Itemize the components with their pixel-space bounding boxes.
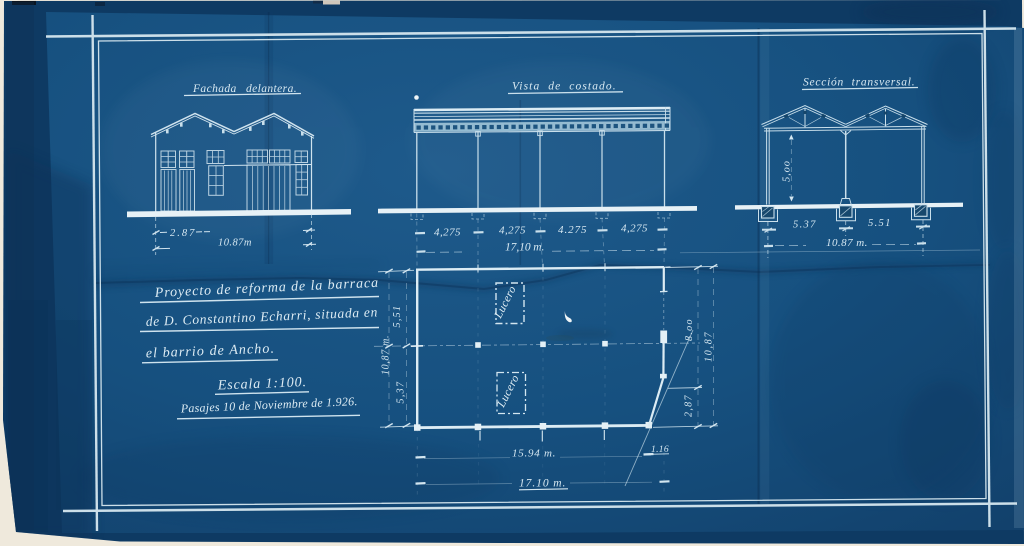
svg-text:4,275: 4,275	[499, 225, 526, 237]
svg-text:5.51: 5.51	[868, 218, 891, 229]
svg-text:17.10 m.: 17.10 m.	[519, 478, 566, 490]
svg-text:4,275: 4,275	[434, 227, 461, 239]
svg-text:8.oo: 8.oo	[684, 319, 695, 341]
svg-text:15.94 m.: 15.94 m.	[512, 448, 556, 460]
svg-text:17,10 m.: 17,10 m.	[505, 242, 545, 254]
svg-text:Sección transversal.: Sección transversal.	[803, 77, 915, 89]
svg-text:2.87: 2.87	[170, 228, 195, 239]
svg-text:4,275: 4,275	[621, 223, 648, 235]
svg-text:5,51: 5,51	[392, 306, 403, 328]
svg-text:5,37: 5,37	[396, 381, 407, 404]
svg-text:4.275: 4.275	[558, 224, 587, 236]
svg-text:10.87m: 10.87m	[218, 238, 252, 249]
svg-text:10,87 m.: 10,87 m.	[381, 335, 392, 375]
svg-text:5.37: 5.37	[793, 220, 816, 231]
svg-text:10,87: 10,87	[704, 332, 715, 363]
svg-text:Vista de costado.: Vista de costado.	[512, 81, 616, 93]
svg-text:2,87: 2,87	[684, 395, 695, 418]
svg-text:5,oo: 5,oo	[782, 160, 793, 182]
svg-text:10.87 m.: 10.87 m.	[826, 237, 868, 249]
